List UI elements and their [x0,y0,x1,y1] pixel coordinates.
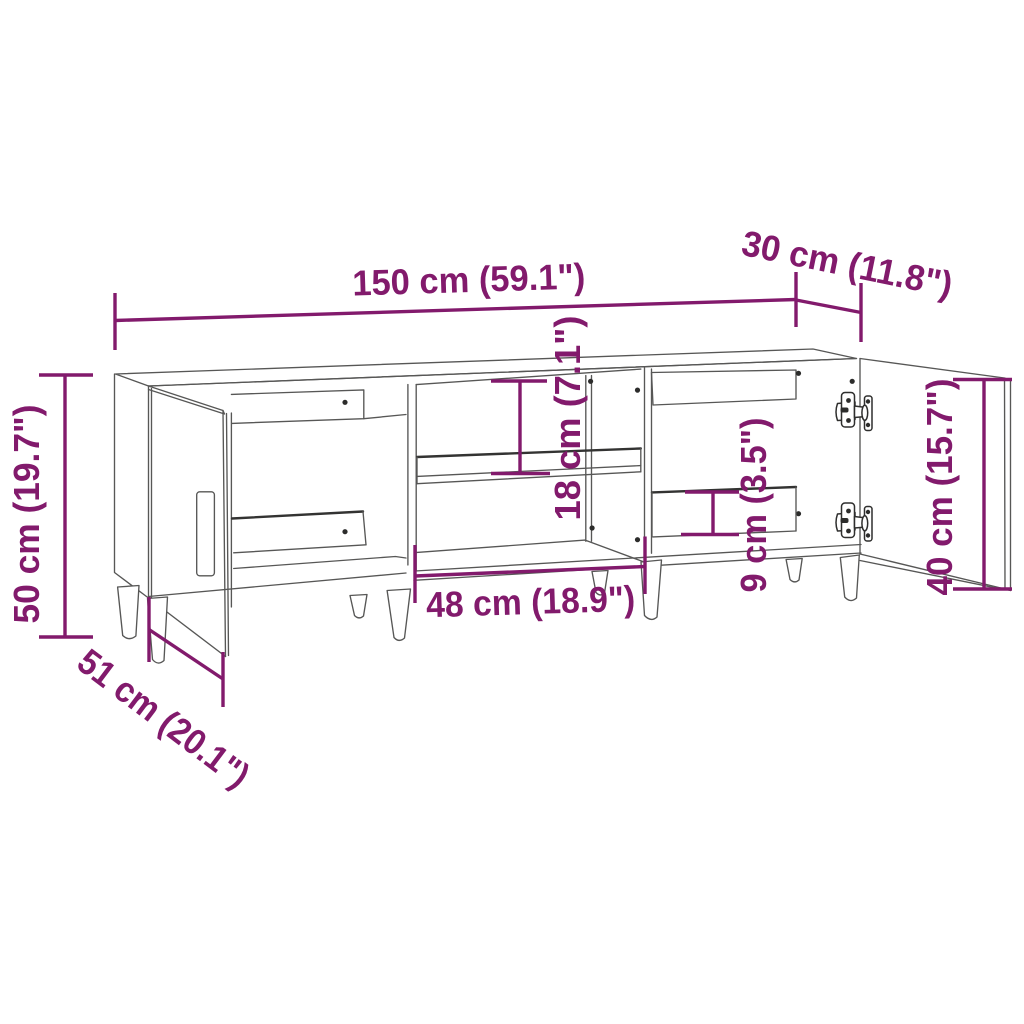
svg-text:48 cm (18.9"): 48 cm (18.9") [426,578,636,626]
svg-text:9 cm (3.5"): 9 cm (3.5") [733,418,774,593]
svg-text:50 cm (19.7"): 50 cm (19.7") [6,405,47,624]
svg-text:40 cm (15.7"): 40 cm (15.7") [919,379,960,596]
svg-text:150 cm (59.1"): 150 cm (59.1") [352,255,586,303]
svg-text:18 cm (7.1"): 18 cm (7.1") [547,316,588,521]
